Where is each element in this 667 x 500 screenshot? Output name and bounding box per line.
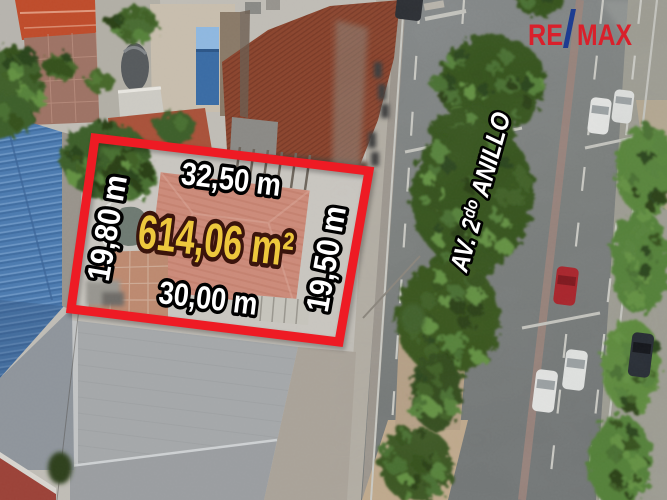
svg-text:RE: RE <box>528 19 563 52</box>
svg-text:MAX: MAX <box>577 19 632 52</box>
